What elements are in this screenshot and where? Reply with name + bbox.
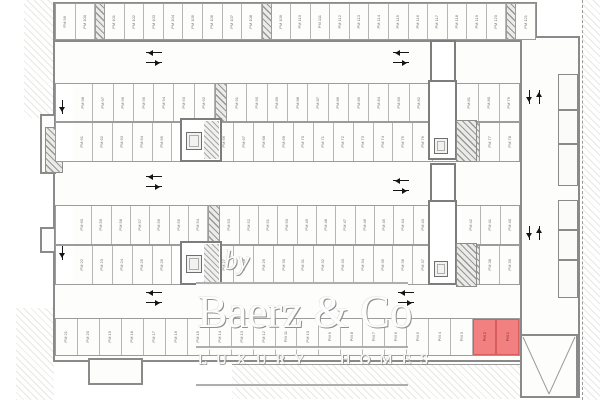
parking-stall: PM 82 xyxy=(410,84,430,121)
parking-stall: PM 85 xyxy=(349,84,369,121)
stall-label: PM 78 xyxy=(508,136,512,148)
stall-label: PM 16 xyxy=(174,331,178,343)
stall-label: PM 120 xyxy=(494,15,498,29)
stall-label: PM 94 xyxy=(162,97,166,109)
stall-label: PM 113 xyxy=(357,15,361,29)
parking-stall: PM 30 xyxy=(274,246,294,284)
parking-stall: PM 116 xyxy=(409,4,429,39)
parking-stall: PM 64 xyxy=(133,123,153,161)
stair-core-right-b-lobby xyxy=(430,163,456,202)
parking-stall: PM 50 xyxy=(278,206,297,244)
parking-stall: PM 120 xyxy=(487,4,507,39)
arrow-left-icon xyxy=(146,52,162,53)
watermark-rule-bottom xyxy=(196,384,408,386)
stair-elevator-core-left-b xyxy=(180,241,222,285)
stall-label: PM 91 xyxy=(235,97,239,109)
technical-room xyxy=(558,110,578,144)
row-gap xyxy=(56,123,73,161)
parking-stall: PM 44 xyxy=(394,206,413,244)
stall-label: PM 105 xyxy=(191,15,195,29)
parking-stall: PM 46 xyxy=(356,206,375,244)
stall-label: PM 117 xyxy=(435,15,439,29)
parking-stall: PM 54 xyxy=(189,206,208,244)
stall-label: PM 60 xyxy=(80,219,84,231)
parking-stall: PM 29 xyxy=(254,246,274,284)
stall-label: PM 116 xyxy=(416,15,420,29)
stall-label: PM 3 xyxy=(460,332,464,341)
parking-stall: PM 21 xyxy=(56,319,78,355)
stall-label: PM 83 xyxy=(397,97,401,109)
site-hatch-south-esplanade xyxy=(232,364,520,399)
stall-label: PM 98 xyxy=(81,97,85,109)
stall-label: PM 68 xyxy=(262,136,266,148)
elevator-shaft xyxy=(434,138,448,154)
parking-stall: PM 103 xyxy=(144,4,164,39)
stall-label: PM 72 xyxy=(341,136,345,148)
stall-label: PM 110 xyxy=(298,15,302,29)
stair-elevator-core-right-a xyxy=(428,80,457,160)
technical-room xyxy=(558,230,578,260)
parking-stall: PM 47 xyxy=(336,206,355,244)
parking-stall: PM 42 xyxy=(462,206,481,244)
parking-stall: PM 59 xyxy=(92,206,111,244)
arrow-left-icon xyxy=(393,180,409,181)
floor-plan-page: PM 99PM 100PM 101PM 102PM 103PM 104PM 10… xyxy=(0,0,600,400)
stall-label: PM 81 xyxy=(467,97,471,109)
parking-stall: PM 23 xyxy=(93,246,113,284)
stall-label: PM 52 xyxy=(247,219,251,231)
hatched-void-column xyxy=(208,206,220,244)
parking-stall: PM 67 xyxy=(234,123,254,161)
stall-label: PM 100 xyxy=(83,15,87,29)
void-hatch-right-a xyxy=(456,120,477,162)
parking-stall: PM 79 xyxy=(500,84,519,121)
parking-stall: PM 34 xyxy=(354,246,374,284)
parking-stall: PM 114 xyxy=(369,4,389,39)
parking-stall: PM 71 xyxy=(314,123,334,161)
arrow-right-icon xyxy=(146,186,162,187)
stall-label: PM 77 xyxy=(488,136,492,148)
parking-stall: PM 72 xyxy=(334,123,354,161)
stall-label: PM 61 xyxy=(80,136,84,148)
stall-label: PM 4 xyxy=(438,332,442,341)
property-boundary-line xyxy=(582,0,583,400)
stall-label: PM 99 xyxy=(63,16,67,28)
arrow-up-icon xyxy=(539,90,540,104)
stall-label: PM 24 xyxy=(120,259,124,271)
parking-stall: PM 86 xyxy=(329,84,349,121)
arrow-left-icon xyxy=(393,52,409,53)
stall-label: PM 32 xyxy=(321,259,325,271)
stall-label: PM 90 xyxy=(255,97,259,109)
stall-label: PM 82 xyxy=(417,97,421,109)
parking-stall: PM 38 xyxy=(480,246,500,284)
stall-label: PM 39 xyxy=(508,259,512,271)
parking-stall: PM 73 xyxy=(354,123,374,161)
stall-label: PM 20 xyxy=(86,331,90,343)
parking-stall: PM 91 xyxy=(227,84,247,121)
parking-stall: PM 111 xyxy=(311,4,331,39)
stall-label: PM 42 xyxy=(469,219,473,231)
arrow-down-icon xyxy=(529,90,530,104)
parking-stall: PM 96 xyxy=(114,84,134,121)
stall-label: PM 95 xyxy=(142,97,146,109)
stall-label: PM 43 xyxy=(421,219,425,231)
elevator-shaft xyxy=(186,132,202,150)
parking-stall: PM 105 xyxy=(183,4,203,39)
parking-stall: PM 45 xyxy=(375,206,394,244)
technical-room xyxy=(558,74,578,110)
stall-label: PM 54 xyxy=(196,219,200,231)
arrow-up-icon xyxy=(539,226,540,240)
parking-stall: PM 32 xyxy=(314,246,334,284)
stall-label: PM 51 xyxy=(266,219,270,231)
parking-stall: PM 109 xyxy=(272,4,292,39)
parking-stall: PM 83 xyxy=(389,84,409,121)
parking-stall: PM 101 xyxy=(105,4,125,39)
stall-label: PM 121 xyxy=(524,15,528,29)
row-gap xyxy=(56,206,73,244)
ramp-void-room xyxy=(558,144,578,186)
stall-label: PM 19 xyxy=(108,331,112,343)
parking-stall: PM 26 xyxy=(153,246,173,284)
parking-stall: PM 113 xyxy=(350,4,370,39)
stall-label: PM 84 xyxy=(377,97,381,109)
parking-stall: PM 84 xyxy=(369,84,389,121)
stall-label: PM 17 xyxy=(152,331,156,343)
highlighted-parking-stall: PM 1 xyxy=(496,319,519,355)
stall-label: PM 79 xyxy=(507,97,511,109)
hatched-void-column xyxy=(95,4,105,39)
parking-stall: PM 80 xyxy=(479,84,499,121)
arrow-right-icon xyxy=(146,302,162,303)
site-hatch-right-strip xyxy=(582,0,600,400)
parking-stall: PM 40 xyxy=(501,206,519,244)
parking-stall: PM 89 xyxy=(268,84,288,121)
parking-stall: PM 68 xyxy=(254,123,274,161)
stall-label: PM 112 xyxy=(338,15,342,29)
stall-label: PM 22 xyxy=(80,259,84,271)
parking-stall: PM 56 xyxy=(150,206,169,244)
parking-stall: PM 3 xyxy=(451,319,473,355)
stall-label: PM 85 xyxy=(357,97,361,109)
parking-stall: PM 62 xyxy=(93,123,113,161)
stall-label: PM 58 xyxy=(119,219,123,231)
parking-stall: PM 31 xyxy=(294,246,314,284)
stall-label: PM 70 xyxy=(301,136,305,148)
parking-stall: PM 90 xyxy=(247,84,267,121)
stall-label: PM 44 xyxy=(401,219,405,231)
parking-stall: PM 106 xyxy=(203,4,223,39)
stall-label: PM 92 xyxy=(202,97,206,109)
site-hatch-top-left xyxy=(24,0,54,118)
parking-stall: PM 16 xyxy=(166,319,188,355)
parking-stall: PM 93 xyxy=(174,84,194,121)
parking-stall: PM 70 xyxy=(294,123,314,161)
elevator-shaft xyxy=(434,261,448,277)
stall-label: PM 76 xyxy=(421,136,425,148)
technical-room xyxy=(558,200,578,230)
void-hatch-right-b xyxy=(456,243,477,287)
stall-label: PM 26 xyxy=(160,259,164,271)
stair-elevator-core-left-a xyxy=(180,118,222,162)
stall-label: PM 87 xyxy=(316,97,320,109)
stall-label: PM 96 xyxy=(121,97,125,109)
stall-label: PM 55 xyxy=(177,219,181,231)
stall-label: PM 86 xyxy=(336,97,340,109)
parking-stall: PM 110 xyxy=(291,4,311,39)
stairs-hatch xyxy=(204,244,219,282)
stall-label: PM 57 xyxy=(138,219,142,231)
arrow-right-icon xyxy=(146,62,162,63)
stall-label: PM 69 xyxy=(282,136,286,148)
stall-label: PM 23 xyxy=(100,259,104,271)
parking-stall: PM 98 xyxy=(73,84,93,121)
stall-label: PM 40 xyxy=(508,219,512,231)
stall-label: PM 119 xyxy=(475,15,479,29)
parking-stall: PM 77 xyxy=(480,123,500,161)
stall-label: PM 31 xyxy=(301,259,305,271)
stall-label: PM 30 xyxy=(282,259,286,271)
watermark-tagline: LUXURY HOMES xyxy=(198,352,437,369)
stall-label: PM 29 xyxy=(262,259,266,271)
parking-stall: PM 49 xyxy=(298,206,317,244)
parking-stall: PM 35 xyxy=(374,246,394,284)
parking-stall: PM 75 xyxy=(393,123,413,161)
parking-stall: PM 69 xyxy=(274,123,294,161)
stall-label: PM 41 xyxy=(488,219,492,231)
parking-stall: PM 99 xyxy=(56,4,76,39)
hatched-void-column xyxy=(506,4,516,39)
parking-stall: PM 61 xyxy=(73,123,93,161)
arrow-down-icon xyxy=(62,100,63,114)
watermark-rule-top xyxy=(196,282,408,284)
parking-stall: PM 118 xyxy=(448,4,468,39)
stall-label: PM 67 xyxy=(242,136,246,148)
site-hatch-bottom-left xyxy=(16,308,54,400)
stall-label: PM 80 xyxy=(487,97,491,109)
hatched-void-column xyxy=(215,84,227,121)
stall-label: PM 65 xyxy=(160,136,164,148)
left-niche-lower xyxy=(40,227,56,253)
parking-stall: PM 57 xyxy=(131,206,150,244)
watermark-rule-middle xyxy=(196,346,408,348)
stall-label: PM 38 xyxy=(488,259,492,271)
parking-stall: PM 25 xyxy=(133,246,153,284)
stall-label: PM 109 xyxy=(279,15,283,29)
highlighted-parking-stall: PM 2 xyxy=(473,319,496,355)
stall-label: PM 66 xyxy=(222,136,226,148)
stall-label: PM 2 xyxy=(483,332,487,341)
stall-label: PM 37 xyxy=(421,259,425,271)
ramp-slope-lines xyxy=(522,336,576,396)
parking-stall: PM 88 xyxy=(288,84,308,121)
stair-core-right-a-lobby xyxy=(430,40,456,82)
parking-stall: PM 74 xyxy=(374,123,394,161)
arrow-down-icon xyxy=(529,226,530,240)
stall-label: PM 104 xyxy=(171,15,175,29)
stall-label: PM 47 xyxy=(343,219,347,231)
stall-label: PM 102 xyxy=(132,15,136,29)
parking-stall: PM 60 xyxy=(73,206,92,244)
parking-stall: PM 24 xyxy=(113,246,133,284)
parking-stall: PM 119 xyxy=(467,4,487,39)
parking-stall: PM 52 xyxy=(240,206,259,244)
parking-stall: PM 94 xyxy=(154,84,174,121)
stall-label: PM 21 xyxy=(64,331,68,343)
stall-label: PM 1 xyxy=(506,332,510,341)
row-gap xyxy=(56,246,73,284)
parking-stall: PM 121 xyxy=(516,4,535,39)
parking-stall: PM 63 xyxy=(113,123,133,161)
stall-label: PM 59 xyxy=(99,219,103,231)
parking-stall: PM 39 xyxy=(500,246,519,284)
elevator-shaft xyxy=(186,255,202,273)
parking-stall: PM 22 xyxy=(73,246,93,284)
arrow-left-icon xyxy=(146,176,162,177)
stall-label: PM 18 xyxy=(130,331,134,343)
stall-label: PM 36 xyxy=(401,259,405,271)
parking-stall: PM 108 xyxy=(242,4,262,39)
stall-label: PM 106 xyxy=(210,15,214,29)
parking-stall: PM 102 xyxy=(125,4,145,39)
stall-label: PM 89 xyxy=(275,97,279,109)
stall-label: PM 114 xyxy=(377,15,381,29)
stairs-hatch xyxy=(204,121,219,159)
stall-label: PM 62 xyxy=(100,136,104,148)
parking-stall: PM 95 xyxy=(134,84,154,121)
parking-stall: PM 117 xyxy=(428,4,448,39)
parking-stall: PM 4 xyxy=(429,319,451,355)
parking-stall: PM 92 xyxy=(195,84,215,121)
parking-stall: PM 41 xyxy=(481,206,500,244)
parking-stall: PM 18 xyxy=(122,319,144,355)
parking-stall: PM 20 xyxy=(78,319,100,355)
stall-label: PM 45 xyxy=(382,219,386,231)
stall-label: PM 53 xyxy=(227,219,231,231)
stall-label: PM 56 xyxy=(157,219,161,231)
stall-label: PM 33 xyxy=(341,259,345,271)
parking-stall: PM 48 xyxy=(317,206,336,244)
stall-label: PM 74 xyxy=(381,136,385,148)
parking-stall: PM 19 xyxy=(100,319,122,355)
hatched-void-column xyxy=(262,4,272,39)
stall-label: PM 5 xyxy=(416,332,420,341)
stall-label: PM 50 xyxy=(285,219,289,231)
stall-label: PM 25 xyxy=(140,259,144,271)
stall-label: PM 64 xyxy=(140,136,144,148)
parking-stall: PM 107 xyxy=(223,4,243,39)
parking-stall: PM 33 xyxy=(334,246,354,284)
stall-label: PM 71 xyxy=(321,136,325,148)
watermark-by: by xyxy=(224,245,249,276)
stall-label: PM 75 xyxy=(401,136,405,148)
stall-label: PM 49 xyxy=(305,219,309,231)
stall-label: PM 101 xyxy=(112,15,116,29)
stall-label: PM 63 xyxy=(120,136,124,148)
stall-label: PM 111 xyxy=(318,15,322,28)
parking-stall: PM 51 xyxy=(259,206,278,244)
stall-label: PM 46 xyxy=(363,219,367,231)
parking-stall: PM 17 xyxy=(144,319,166,355)
parking-stall: PM 53 xyxy=(220,206,239,244)
parking-stall: PM 104 xyxy=(164,4,184,39)
stall-label: PM 115 xyxy=(396,15,400,29)
stall-label: PM 35 xyxy=(381,259,385,271)
parking-stall: PM 115 xyxy=(389,4,409,39)
stall-label: PM 93 xyxy=(182,97,186,109)
parking-stall: PM 112 xyxy=(330,4,350,39)
stall-label: PM 34 xyxy=(361,259,365,271)
parking-stall: PM 65 xyxy=(153,123,173,161)
stall-label: PM 48 xyxy=(324,219,328,231)
stall-label: PM 107 xyxy=(230,15,234,29)
stall-label: PM 97 xyxy=(101,97,105,109)
stall-label: PM 73 xyxy=(361,136,365,148)
parking-stall: PM 87 xyxy=(308,84,328,121)
arrow-right-icon xyxy=(393,190,409,191)
technical-room xyxy=(558,260,578,298)
parking-stall: PM 78 xyxy=(500,123,519,161)
arrow-right-icon xyxy=(393,62,409,63)
watermark-brand: Baerz & Co xyxy=(194,286,416,338)
stair-elevator-core-right-b xyxy=(428,200,457,285)
parking-stall: PM 100 xyxy=(76,4,96,39)
arrow-down-icon xyxy=(62,246,63,260)
stall-row-top: PM 99PM 100PM 101PM 102PM 103PM 104PM 10… xyxy=(55,3,536,40)
stall-label: PM 103 xyxy=(152,15,156,29)
parking-stall: PM 36 xyxy=(393,246,413,284)
row-gap xyxy=(56,84,73,121)
arrow-left-icon xyxy=(146,292,162,293)
stall-label: PM 108 xyxy=(249,15,253,29)
parking-stall: PM 55 xyxy=(170,206,189,244)
bottom-left-stair-block xyxy=(88,358,143,385)
parking-stall: PM 81 xyxy=(459,84,479,121)
parking-stall: PM 97 xyxy=(93,84,113,121)
parking-stall: PM 58 xyxy=(112,206,131,244)
stall-label: PM 118 xyxy=(455,15,459,29)
stall-label: PM 88 xyxy=(296,97,300,109)
